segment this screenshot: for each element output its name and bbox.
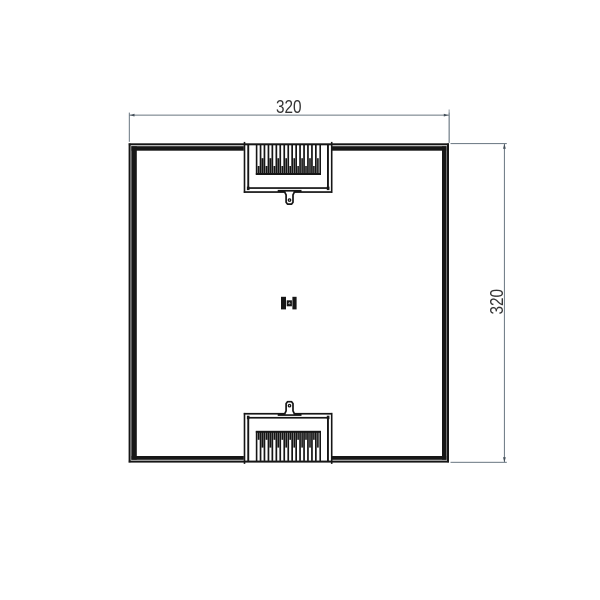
svg-text:320: 320 xyxy=(486,289,507,315)
svg-text:320: 320 xyxy=(276,96,302,117)
